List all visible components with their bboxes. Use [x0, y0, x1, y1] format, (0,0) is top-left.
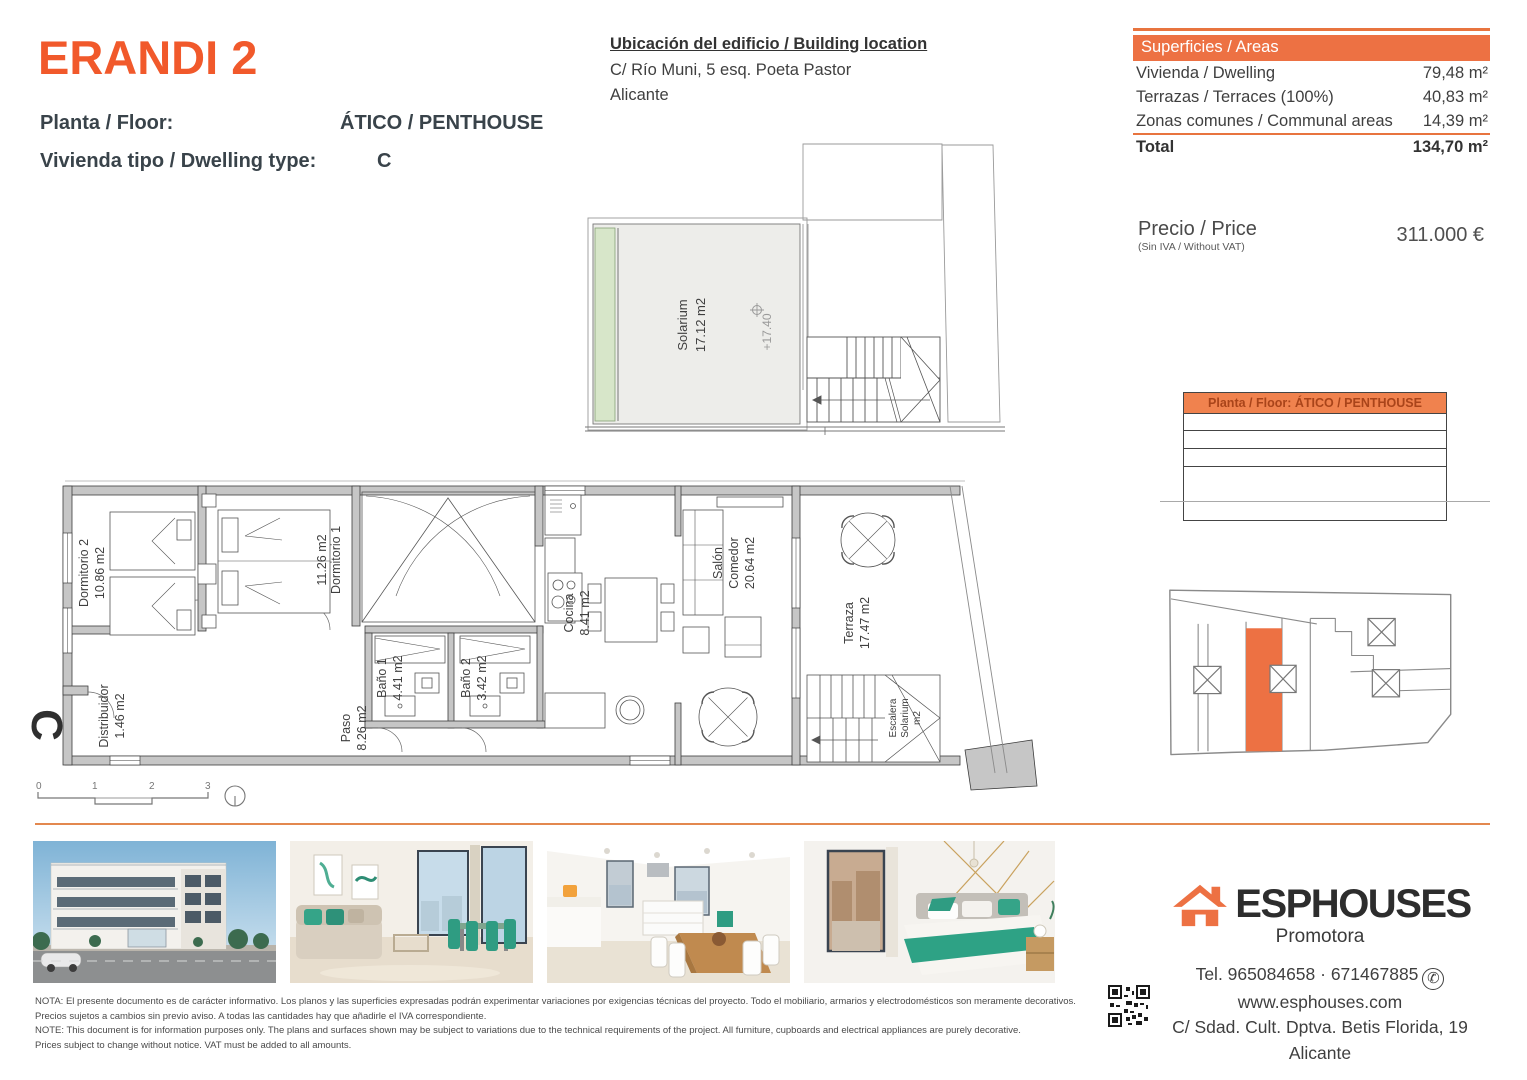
- room-label: Terraza: [842, 602, 856, 644]
- areas-row-value: 79,48 m²: [1423, 64, 1488, 83]
- photo-bedroom: [804, 841, 1055, 983]
- price-value: 311.000 €: [1397, 224, 1485, 247]
- room-label: Escalera: [888, 698, 899, 737]
- living-room-furniture: [683, 497, 783, 746]
- brand-logo: ESPHOUSES: [1140, 880, 1500, 928]
- floor-label: Planta / Floor:: [40, 112, 173, 134]
- areas-row-dwelling: Vivienda / Dwelling 79,48 m²: [1133, 61, 1490, 85]
- brand-phone: Tel. 965084658 · 671467885✆: [1140, 962, 1500, 990]
- wardrobe: [362, 492, 535, 622]
- location-address: C/ Río Muni, 5 esq. Poeta Pastor: [610, 58, 927, 84]
- dwelling-type-row: Vivienda tipo / Dwelling type: C: [40, 150, 316, 173]
- room-label: Dormitorio 1: [329, 526, 343, 594]
- planter-strip: [595, 228, 615, 421]
- solarium-floor-plan: Solarium 17.12 m2 +17.40: [585, 140, 1035, 485]
- room-area: 20.64 m2: [743, 537, 757, 589]
- disclaimer-line: Prices subject to change without notice.…: [35, 1039, 1095, 1054]
- areas-row-value: 14,39 m²: [1423, 112, 1488, 131]
- whatsapp-icon: ✆: [1422, 968, 1444, 990]
- dwelling-type-value: C: [377, 150, 391, 173]
- brand-website[interactable]: www.esphouses.com: [1140, 990, 1500, 1015]
- plan-type-letter: C: [21, 709, 71, 741]
- room-label: Salón: [711, 547, 725, 579]
- areas-row-value: 40,83 m²: [1423, 88, 1488, 107]
- floor-table-row: [1184, 502, 1446, 520]
- sofa: [296, 905, 382, 959]
- footer-divider: [35, 823, 1490, 825]
- room-area: 10.86 m2: [93, 547, 107, 599]
- kitchen-table: [605, 578, 657, 642]
- building-location: Ubicación del edificio / Building locati…: [610, 32, 927, 109]
- areas-total-value: 134,70 m²: [1413, 138, 1488, 157]
- drawing-ground-line: [1160, 501, 1490, 502]
- areas-table: Superficies / Areas Vivienda / Dwelling …: [1133, 28, 1490, 159]
- solarium-stairs: [807, 337, 940, 422]
- room-area: 3.42 m2: [475, 655, 489, 700]
- location-city: Alicante: [610, 83, 927, 109]
- disclaimer-line: NOTE: This document is for information p…: [35, 1024, 1095, 1039]
- room-label: Dormitorio 2: [77, 539, 91, 607]
- disclaimer: NOTA: El presente documento es de caráct…: [35, 995, 1095, 1054]
- floor-table-row: [1184, 467, 1446, 502]
- brand-city: Alicante: [1140, 1041, 1500, 1066]
- dwelling-type-label: Vivienda tipo / Dwelling type:: [40, 150, 316, 172]
- brand-subtitle: Promotora: [1140, 926, 1500, 948]
- room-area: m2: [912, 711, 923, 725]
- areas-row-label: Terrazas / Terraces (100%): [1136, 88, 1334, 107]
- photo-living-room: [290, 841, 533, 983]
- floor-row: Planta / Floor: ÁTICO / PENTHOUSE: [40, 112, 173, 135]
- scale-tick: 3: [205, 781, 211, 792]
- areas-row-total: Total 134,70 m²: [1133, 133, 1490, 159]
- room-label: Comedor: [727, 537, 741, 588]
- price-block: Precio / Price (Sin IVA / Without VAT) 3…: [1133, 218, 1490, 253]
- room-label: Paso: [339, 714, 353, 743]
- floor-table-row: [1184, 449, 1446, 467]
- room-area: 11.26 m2: [315, 534, 329, 585]
- site-key-plan: [1168, 588, 1458, 760]
- brand-name: ESPHOUSES: [1235, 882, 1470, 927]
- solarium-label: Solarium: [675, 299, 690, 350]
- room-label: Baño 2: [459, 658, 473, 698]
- room-area: 4.41 m2: [391, 655, 405, 700]
- room-area: 1.46 m2: [113, 693, 127, 738]
- double-bed: [202, 494, 330, 628]
- solarium-level: +17.40: [760, 313, 774, 350]
- areas-total-label: Total: [1136, 138, 1174, 157]
- brochure-page: ERANDI 2 Planta / Floor: ÁTICO / PENTHOU…: [0, 0, 1527, 1080]
- floor-value: ÁTICO / PENTHOUSE: [340, 112, 543, 135]
- floor-table-header: Planta / Floor: ÁTICO / PENTHOUSE: [1184, 393, 1446, 414]
- scale-bar: 0 1 2 3: [30, 780, 260, 812]
- photo-building-exterior: [33, 841, 276, 983]
- north-arrow-icon: [225, 786, 245, 806]
- areas-top-rule: [1133, 28, 1490, 31]
- brand-address: C/ Sdad. Cult. Dptva. Betis Florida, 19: [1140, 1015, 1500, 1040]
- disclaimer-line: NOTA: El presente documento es de caráct…: [35, 995, 1095, 1010]
- floor-table-row: [1184, 431, 1446, 449]
- room-label: Distribuidor: [97, 684, 111, 747]
- areas-row-label: Zonas comunes / Communal areas: [1136, 112, 1393, 131]
- room-label: Cocina: [562, 594, 576, 633]
- solarium-area: 17.12 m2: [693, 298, 708, 352]
- lightwell-boxes: [1194, 618, 1400, 696]
- photo-kitchen-dining: [547, 841, 790, 983]
- room-label: Baño 1: [375, 658, 389, 698]
- room-label: Solarium: [900, 698, 911, 737]
- scale-tick: 0: [36, 781, 42, 792]
- main-floor-plan: Dormitorio 2 10.86 m2 Dormitorio 1 11.26…: [30, 478, 1040, 796]
- brand-block: ESPHOUSES Promotora Tel. 965084658 · 671…: [1140, 880, 1500, 1066]
- areas-header: Superficies / Areas: [1133, 35, 1490, 61]
- floor-table-row: [1184, 414, 1446, 431]
- areas-row-label: Vivienda / Dwelling: [1136, 64, 1275, 83]
- house-logo-icon: [1169, 880, 1231, 928]
- room-area: 17.47 m2: [858, 597, 872, 649]
- room-area: 8.41 m2: [578, 590, 592, 635]
- areas-row-communal: Zonas comunes / Communal areas 14,39 m²: [1133, 109, 1490, 133]
- areas-row-terraces: Terrazas / Terraces (100%) 40,83 m²: [1133, 85, 1490, 109]
- disclaimer-line: Precios sujetos a cambios sin previo avi…: [35, 1010, 1095, 1025]
- scale-tick: 2: [149, 781, 155, 792]
- scale-tick: 1: [92, 781, 98, 792]
- location-heading: Ubicación del edificio / Building locati…: [610, 32, 927, 58]
- room-area: 8.26 m2: [355, 705, 369, 750]
- project-title: ERANDI 2: [38, 30, 257, 85]
- round-table: [699, 688, 757, 746]
